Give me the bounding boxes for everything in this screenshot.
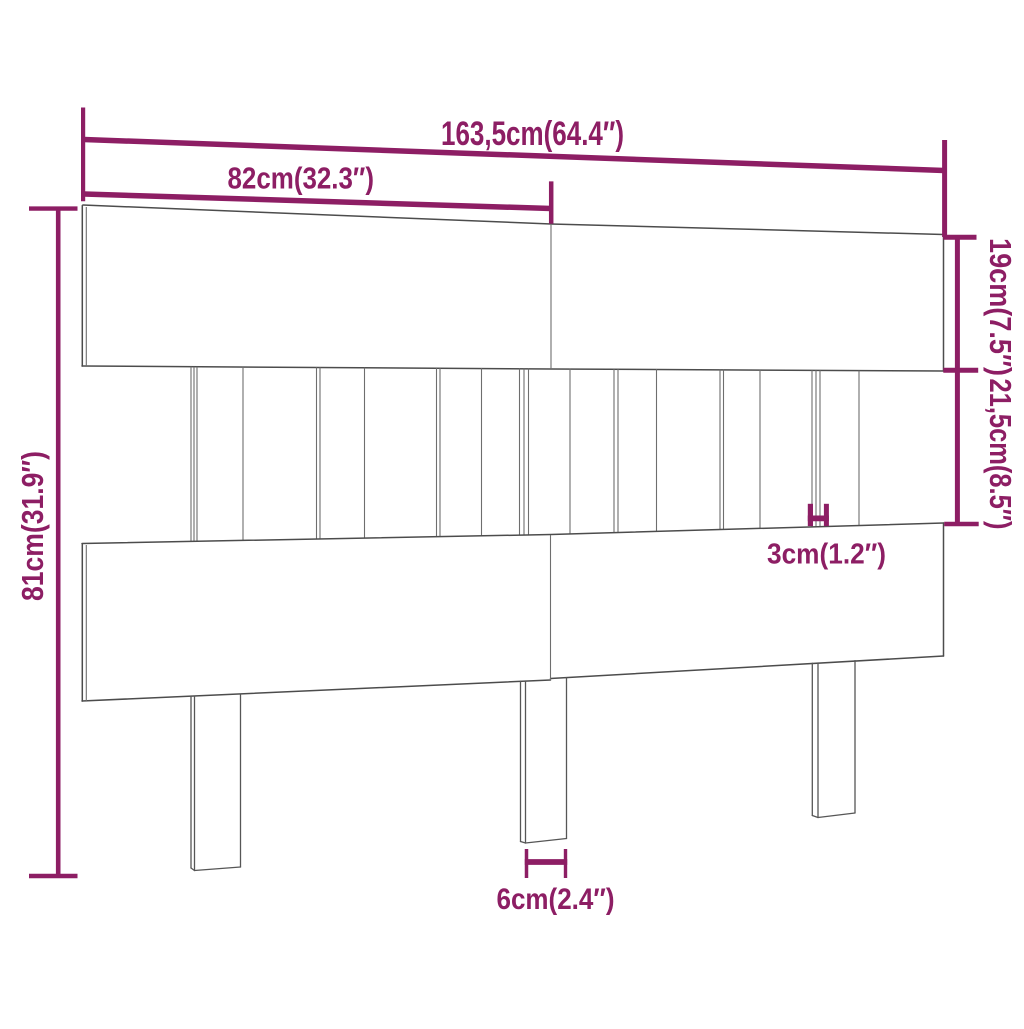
svg-text:3cm(1.2″): 3cm(1.2″) bbox=[767, 539, 886, 571]
svg-text:81cm(31.9″): 81cm(31.9″) bbox=[15, 451, 50, 601]
svg-text:82cm(32.3″): 82cm(32.3″) bbox=[228, 161, 375, 196]
svg-text:163,5cm(64.4″): 163,5cm(64.4″) bbox=[441, 115, 624, 153]
svg-text:21,5cm(8.5″): 21,5cm(8.5″) bbox=[983, 379, 1018, 530]
svg-text:19cm(7.5″): 19cm(7.5″) bbox=[983, 238, 1018, 376]
svg-text:6cm(2.4″): 6cm(2.4″) bbox=[497, 883, 615, 916]
